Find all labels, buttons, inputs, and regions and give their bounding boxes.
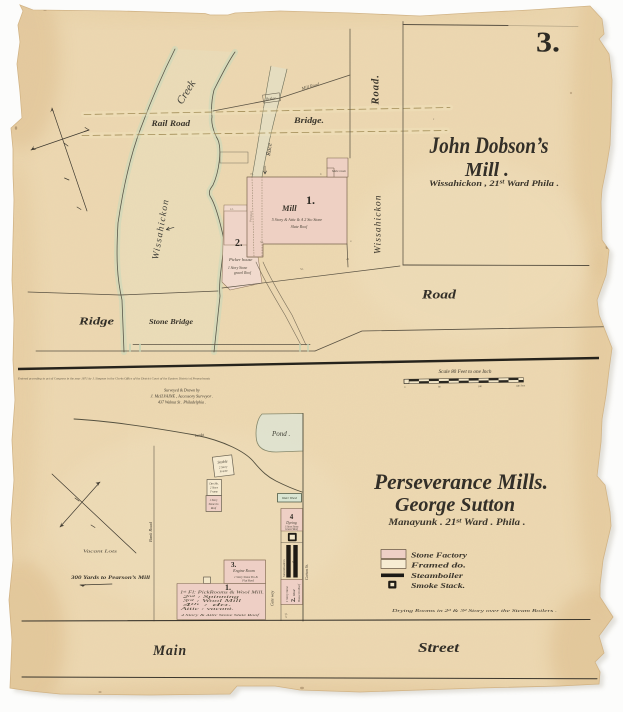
svg-text:Water Wheel: Water Wheel	[282, 496, 297, 500]
svg-text:Stone Bridge: Stone Bridge	[149, 318, 193, 326]
svg-text:Perseverance Mills.: Perseverance Mills.	[373, 469, 548, 494]
svg-text:Stone tin: Stone tin	[209, 503, 219, 506]
svg-text:gravel Roof: gravel Roof	[234, 271, 252, 275]
svg-text:Mill: Mill	[281, 203, 297, 213]
svg-text:4 Story & Attic Stone Slate: 4 Story & Attic Stone Slate Roof	[181, 613, 261, 617]
svg-text:Steamboilers: Steamboilers	[282, 559, 286, 577]
svg-text:Penstock: Penstock	[248, 210, 253, 223]
svg-text:437 Walnut St . Philadelphia .: 437 Walnut St . Philadelphia .	[158, 400, 206, 405]
svg-text:Wissahickon , 21st Ward Phila: Wissahickon , 21st Ward Phila .	[429, 178, 559, 188]
svg-text:John Dobson’s: John Dobson’s	[429, 133, 549, 158]
svg-text:Gate way: Gate way	[270, 591, 275, 606]
svg-text:Pond .: Pond .	[271, 430, 291, 438]
svg-text:Cotton St.: Cotton St.	[304, 564, 309, 580]
svg-text:1.: 1.	[306, 193, 315, 207]
svg-text:Street: Street	[418, 641, 460, 656]
svg-text:Road: Road	[421, 288, 457, 302]
svg-text:Scale 80 Feet to one Inch: Scale 80 Feet to one Inch	[439, 369, 492, 375]
svg-text:3.: 3.	[536, 28, 560, 59]
svg-text:1 Story Stone: 1 Story Stone	[228, 266, 248, 270]
svg-text:George Sutton: George Sutton	[395, 494, 515, 516]
svg-text:Rail Road: Rail Road	[150, 118, 190, 128]
svg-text:Attic : vacant.: Attic : vacant.	[179, 606, 234, 611]
svg-text:Bridge.: Bridge.	[293, 115, 324, 125]
svg-text:Dyeing: Dyeing	[285, 521, 297, 525]
svg-text:Wissahickon: Wissahickon	[374, 194, 384, 254]
svg-text:House tin Roof: House tin Roof	[297, 583, 301, 603]
svg-text:5 Story & Attic & A 2 Sto Sto: 5 Story & Attic & A 2 Sto Stone	[272, 217, 323, 222]
svg-text:Slate Roof: Slate Roof	[291, 224, 308, 229]
svg-text:Gravel Roof: Gravel Roof	[285, 528, 299, 531]
svg-text:Dye Ho.: Dye Ho.	[208, 483, 219, 486]
svg-text:52.: 52.	[300, 267, 304, 271]
svg-text:Framed do.: Framed do.	[411, 561, 466, 570]
svg-text:72.: 72.	[250, 172, 254, 176]
svg-text:1 Story Stone: 1 Story Stone	[285, 585, 289, 602]
svg-text:4: 4	[290, 513, 294, 521]
svg-text:Mule room: Mule room	[331, 169, 347, 173]
svg-text:Steamboiler: Steamboiler	[411, 571, 463, 580]
svg-text:Road.: Road.	[371, 74, 382, 105]
svg-text:Surveyed & Drawn by: Surveyed & Drawn by	[164, 387, 200, 392]
svg-text:Smoke Stack.: Smoke Stack.	[411, 581, 465, 590]
svg-text:44: 44	[346, 257, 350, 261]
svg-text:1 Story: 1 Story	[209, 499, 218, 502]
svg-text:Engine Room: Engine Room	[232, 568, 255, 573]
svg-text:21 ft: 21 ft	[285, 613, 288, 618]
svg-text:440 Feet: 440 Feet	[516, 385, 525, 388]
svg-text:Bank Road: Bank Road	[148, 521, 153, 542]
svg-text:Stone Factory: Stone Factory	[411, 551, 468, 560]
svg-text:2.: 2.	[235, 238, 243, 249]
svg-text:Entered according to act of Co: Entered according to act of Congress in …	[17, 376, 211, 380]
svg-text:300 Yards to Pearson’s Mill: 300 Yards to Pearson’s Mill	[70, 575, 151, 581]
svg-text:Vacant Lots: Vacant Lots	[83, 549, 118, 554]
svg-text:Flat Roof: Flat Roof	[241, 579, 255, 583]
svg-text:Main: Main	[152, 643, 187, 659]
svg-text:Drying Rooms in 2d & 3d Story: Drying Rooms in 2d & 3d Story over the S…	[390, 608, 557, 613]
svg-text:12.: 12.	[230, 207, 234, 211]
svg-text:Ridge: Ridge	[78, 317, 115, 328]
svg-text:2 Story: 2 Story	[210, 487, 219, 490]
svg-text:Frame: Frame	[209, 491, 218, 494]
svg-text:34.: 34.	[260, 240, 264, 244]
svg-text:Picker house: Picker house	[228, 257, 252, 262]
